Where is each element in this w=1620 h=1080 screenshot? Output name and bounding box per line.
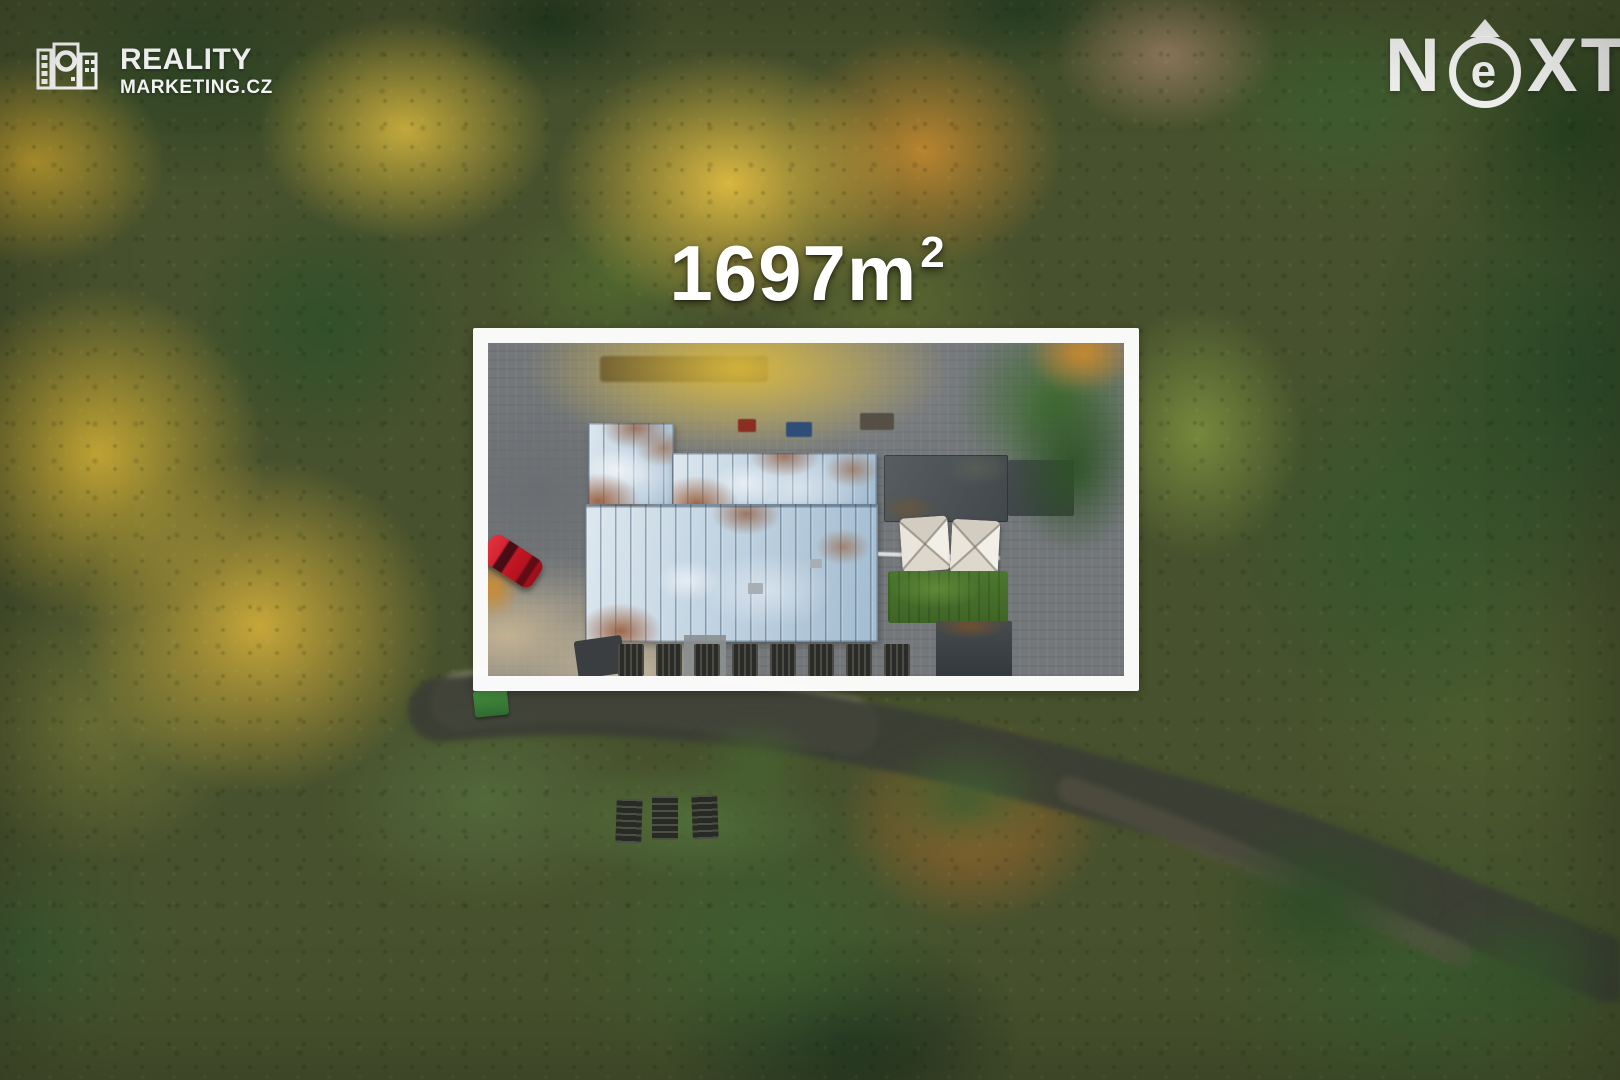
- buildings-camera-icon: [36, 42, 110, 99]
- picnic-table: [615, 799, 643, 844]
- reality-wordmark-line2: MARKETING.CZ: [120, 78, 273, 97]
- property-boundary-overlay: [473, 328, 1139, 691]
- reality-marketing-wordmark: REALITY MARKETING.CZ: [120, 45, 273, 97]
- next-letters-xt: XT: [1527, 22, 1620, 109]
- next-logo: N e XT: [1385, 22, 1620, 109]
- up-arrow-icon: [1470, 19, 1500, 37]
- next-e-circle: e: [1449, 36, 1521, 108]
- picnic-table: [691, 795, 719, 840]
- area-exponent: 2: [920, 228, 945, 277]
- next-letter-e: e: [1471, 48, 1500, 94]
- reality-marketing-logo: REALITY MARKETING.CZ: [36, 42, 273, 99]
- area-label: 1697m2: [669, 234, 942, 312]
- tree-canopy: [1210, 820, 1430, 980]
- tree-canopy: [1430, 900, 1620, 1040]
- picnic-table: [652, 796, 678, 840]
- aerial-photo: 1697m2 REALITY MARKETING.CZ: [0, 0, 1620, 1080]
- next-letter-n: N: [1385, 22, 1443, 109]
- tree-canopy: [880, 740, 1050, 860]
- reality-wordmark-line1: REALITY: [120, 45, 273, 75]
- green-dumpster: [473, 688, 510, 717]
- area-unit: m: [847, 229, 917, 317]
- area-value: 1697: [669, 229, 847, 317]
